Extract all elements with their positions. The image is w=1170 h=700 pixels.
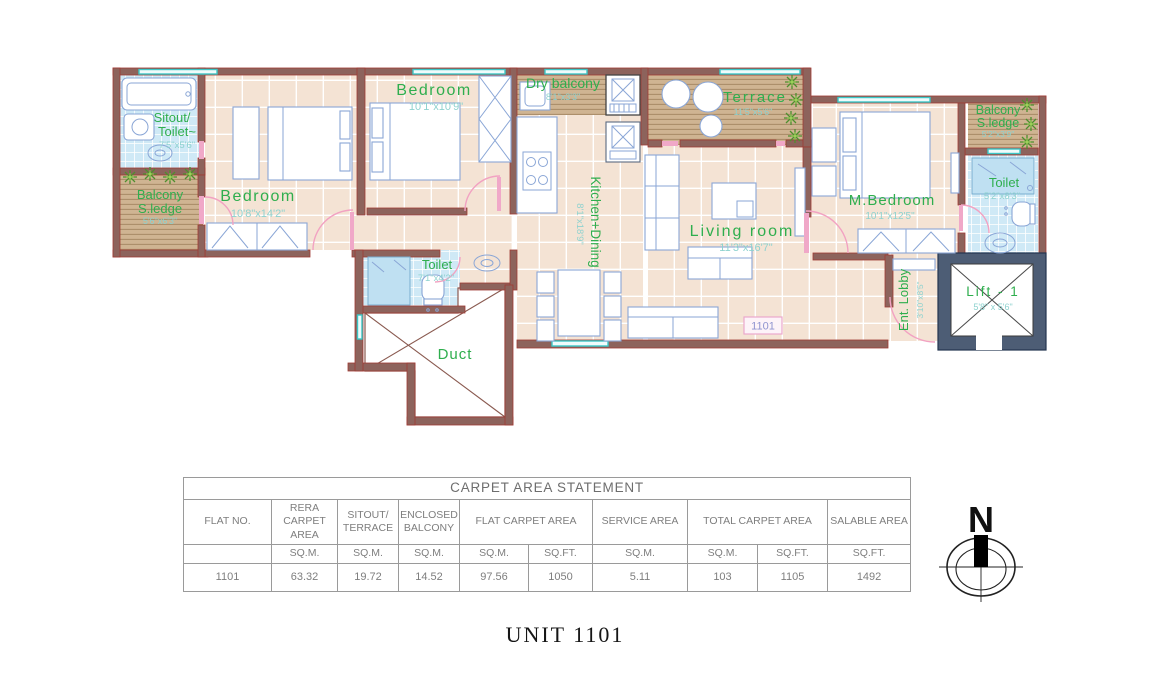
carpet-area-table: CARPET AREA STATEMENT FLAT NO. RERA CARP… xyxy=(183,477,911,592)
balcony-left-label: Balcony xyxy=(137,187,184,202)
col-rera-carpet-area: RERA CARPET AREA xyxy=(272,500,338,545)
toilet-mid-dim: 7'1"x4'2" xyxy=(418,273,454,284)
value-cell: 1105 xyxy=(758,564,828,592)
living-room-label: Living room xyxy=(690,223,795,240)
north-compass: N xyxy=(933,496,1033,610)
unit-cell: SQ.M. xyxy=(688,545,758,564)
table-title: CARPET AREA STATEMENT xyxy=(184,478,911,500)
basin-niche-floor xyxy=(460,250,512,288)
unit-cell: SQ.M. xyxy=(338,545,399,564)
floor-plan: Sitout/ Toilet~ 7'5"x5'6" Balcony S.ledg… xyxy=(0,0,1170,460)
col-flat-no: FLAT NO. xyxy=(184,500,272,545)
north-letter: N xyxy=(968,499,994,540)
col-flat-carpet-area: FLAT CARPET AREA xyxy=(460,500,593,545)
unit-number-badge: 1101 xyxy=(744,317,782,334)
lift-label: Lift - 1 xyxy=(966,284,1020,299)
toilet-right-dim: 5'2"x8'3" xyxy=(984,191,1020,202)
col-total-carpet-area: TOTAL CARPET AREA xyxy=(688,500,828,545)
lift-dim: 5'8" x 5'6" xyxy=(973,302,1012,312)
svg-text:Toilet~: Toilet~ xyxy=(158,124,196,139)
ent-lobby-label: Ent. Lobby xyxy=(896,268,911,331)
mbedroom-label: M.Bedroom xyxy=(849,192,936,209)
lobby-shelf xyxy=(893,259,935,270)
svg-text:S.ledge: S.ledge xyxy=(138,201,182,216)
toilet-mid-label: Toilet xyxy=(422,257,453,272)
wardrobe-mbedroom xyxy=(858,229,955,253)
wc-sitout xyxy=(124,114,154,140)
lift-door-gap xyxy=(976,330,1002,350)
mbedroom-dim: 10'1"x12'5" xyxy=(865,211,915,222)
washing-machine xyxy=(606,75,640,115)
balcony-right-label: Balcony xyxy=(976,103,1021,117)
nightstand xyxy=(812,166,836,196)
value-cell: 14.52 xyxy=(399,564,460,592)
unit-cell: SQ.M. xyxy=(399,545,460,564)
kitchen-dim: 8'1"x18'9" xyxy=(574,203,585,245)
value-cell: 1050 xyxy=(529,564,593,592)
sitout-toilet-dim: 7'5"x5'6" xyxy=(159,140,195,151)
col-enclosed-balcony: ENCLOSED BALCONY xyxy=(399,500,460,545)
bedroom1-label: Bedroom xyxy=(220,188,295,205)
wardrobe-bedroom1 xyxy=(207,223,307,250)
unit-cell: SQ.FT. xyxy=(758,545,828,564)
col-sitout-terrace: SITOUT/ TERRACE xyxy=(338,500,399,545)
dresser-bedroom1 xyxy=(233,107,259,179)
compass-north-needle xyxy=(974,535,988,567)
toilet-right-label: Toilet xyxy=(989,175,1020,190)
unit-cell xyxy=(184,545,272,564)
unit-cell: SQ.M. xyxy=(272,545,338,564)
floorplan-page: Sitout/ Toilet~ 7'5"x5'6" Balcony S.ledg… xyxy=(0,0,1170,700)
value-cell: 19.72 xyxy=(338,564,399,592)
terrace-dim: 11'5"x5'6" xyxy=(734,107,773,117)
duct-label: Duct xyxy=(438,346,473,363)
ent-lobby-dim: 3'10"x8'5" xyxy=(915,281,925,318)
value-cell: 5.11 xyxy=(593,564,688,592)
value-cell: 1101 xyxy=(184,564,272,592)
balcony-left-dim: 5'6"x6'3" xyxy=(143,216,177,226)
dry-balcony-dim: 8'1"x3'3" xyxy=(546,92,580,102)
wardrobe-bedroom2 xyxy=(479,76,511,162)
unit-cell: SQ.FT. xyxy=(828,545,911,564)
bedroom1-dim: 10'8"x14'2" xyxy=(231,208,285,220)
value-cell: 1492 xyxy=(828,564,911,592)
value-cell: 63.32 xyxy=(272,564,338,592)
svg-text:S.ledge: S.ledge xyxy=(977,116,1019,130)
balcony-right-dim: 5'2"x3'9" xyxy=(982,129,1014,139)
tv-panel-mbedroom xyxy=(951,153,959,193)
value-cell: 97.56 xyxy=(460,564,529,592)
dry-balcony-label: Dry balcony xyxy=(526,75,600,91)
unit-title: UNIT 1101 xyxy=(455,622,675,648)
svg-text:1101: 1101 xyxy=(751,321,775,333)
bedroom2-dim: 10'1"x10'9" xyxy=(409,101,463,113)
unit-cell: SQ.M. xyxy=(460,545,529,564)
bedroom2-label: Bedroom xyxy=(396,82,471,99)
col-service-area: SERVICE AREA xyxy=(593,500,688,545)
bed-bedroom1 xyxy=(268,107,352,180)
kitchen-label: Kitchen+Dining xyxy=(588,176,603,267)
sitout-toilet-label: Sitout/ xyxy=(154,110,191,125)
terrace-label: Terrace xyxy=(723,89,787,106)
nightstand xyxy=(812,128,836,162)
unit-cell: SQ.FT. xyxy=(529,545,593,564)
geyser-unit xyxy=(606,122,640,162)
unit-cell: SQ.M. xyxy=(593,545,688,564)
living-room-dim: 11'3"x16'7" xyxy=(719,242,772,254)
col-salable-area: SALABLE AREA xyxy=(828,500,911,545)
value-cell: 103 xyxy=(688,564,758,592)
tv-unit xyxy=(795,168,805,236)
dining-set xyxy=(537,270,621,341)
